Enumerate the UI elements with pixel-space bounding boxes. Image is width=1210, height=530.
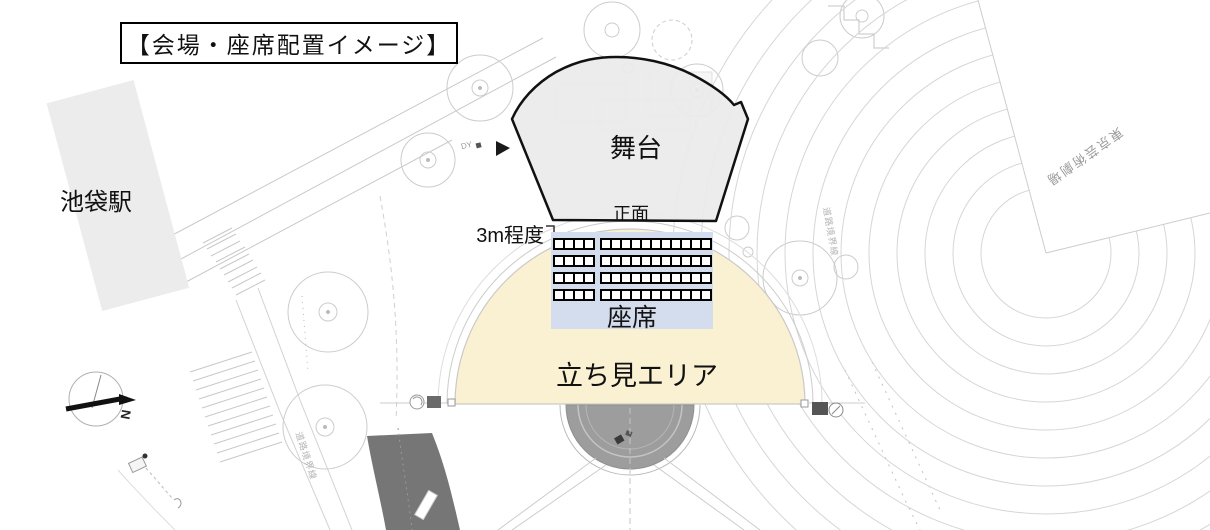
page-title: 【会場・座席配置イメージ】 xyxy=(127,26,452,60)
seat xyxy=(700,238,712,250)
standing-area-label: 立ち見エリア xyxy=(537,354,737,393)
seat-row xyxy=(553,255,712,267)
seat xyxy=(583,289,595,301)
seat-area: 座席 xyxy=(551,232,713,329)
seat xyxy=(700,272,712,284)
seat-row xyxy=(553,272,712,284)
dy-marker xyxy=(476,142,482,148)
station-label: 池袋駅 xyxy=(60,182,132,217)
seat xyxy=(583,272,595,284)
building-shape xyxy=(367,428,460,530)
seats-label: 座席 xyxy=(607,306,657,331)
seat xyxy=(583,255,595,267)
gap-distance-label: 3m程度 xyxy=(452,219,544,248)
seat-row xyxy=(553,289,712,301)
stage-label: 舞台 xyxy=(586,128,686,165)
seat xyxy=(700,255,712,267)
seat-row xyxy=(553,238,712,250)
seat-grid xyxy=(553,238,712,306)
ring-wedge-cut xyxy=(978,0,1210,253)
seat xyxy=(583,238,595,250)
direction-triangle-icon xyxy=(496,141,510,156)
survey-marker-icon xyxy=(129,454,181,509)
title-box: 【会場・座席配置イメージ】 xyxy=(120,22,458,64)
seat xyxy=(700,289,712,301)
stage-front-label: 正面 xyxy=(591,200,671,226)
venue-layout-diagram: 座席 【会場・座席配置イメージ】 池袋駅 舞台 正面 3m程度 立ち見エリア N… xyxy=(0,0,1210,530)
